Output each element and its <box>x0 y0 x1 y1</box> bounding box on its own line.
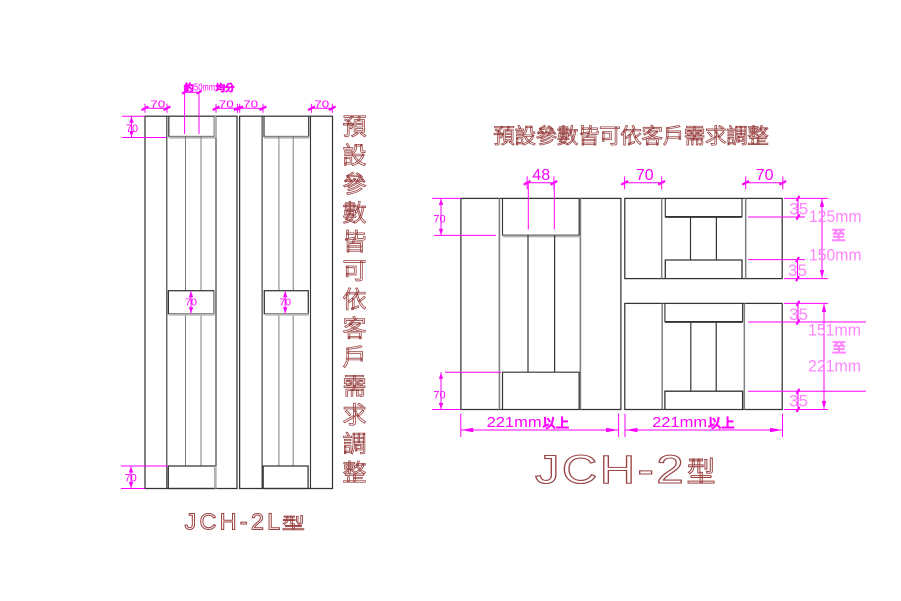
svg-text:125mm: 125mm <box>809 207 862 226</box>
svg-text:35: 35 <box>789 391 808 410</box>
svg-text:70: 70 <box>433 213 445 225</box>
svg-text:35: 35 <box>788 261 807 280</box>
svg-text:70: 70 <box>150 98 165 110</box>
svg-text:70: 70 <box>314 98 329 110</box>
svg-text:70: 70 <box>126 123 138 135</box>
svg-text:70: 70 <box>219 98 234 110</box>
svg-text:JCH-2L: JCH-2L <box>185 509 284 535</box>
svg-text:48: 48 <box>532 167 550 184</box>
svg-text:150mm: 150mm <box>809 246 862 265</box>
svg-text:70: 70 <box>636 167 654 184</box>
svg-text:70: 70 <box>756 167 774 184</box>
svg-text:35: 35 <box>789 305 808 324</box>
svg-text:70: 70 <box>185 296 197 308</box>
svg-text:221mm: 221mm <box>652 415 707 431</box>
svg-text:JCH-2: JCH-2 <box>535 448 686 492</box>
svg-text:221mm: 221mm <box>487 415 542 431</box>
svg-text:70: 70 <box>243 98 258 110</box>
svg-text:70: 70 <box>124 473 136 485</box>
svg-text:221mm: 221mm <box>808 357 861 376</box>
svg-text:70: 70 <box>279 296 291 308</box>
svg-text:35: 35 <box>789 200 808 219</box>
svg-text:70: 70 <box>433 390 445 402</box>
svg-text:151mm: 151mm <box>808 320 861 339</box>
